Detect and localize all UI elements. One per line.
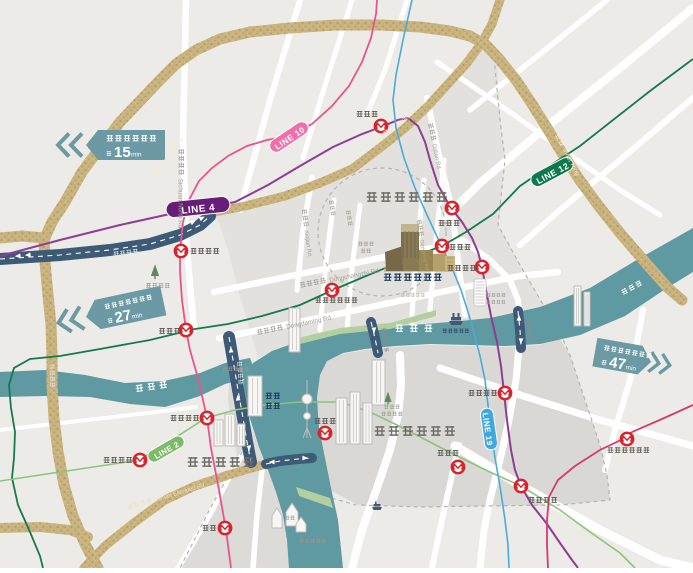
svg-text:min: min: [131, 152, 142, 159]
svg-text:Sichuan North Rd.: Sichuan North Rd.: [177, 179, 184, 231]
svg-text:15: 15: [114, 144, 131, 161]
svg-text:27: 27: [113, 307, 133, 327]
